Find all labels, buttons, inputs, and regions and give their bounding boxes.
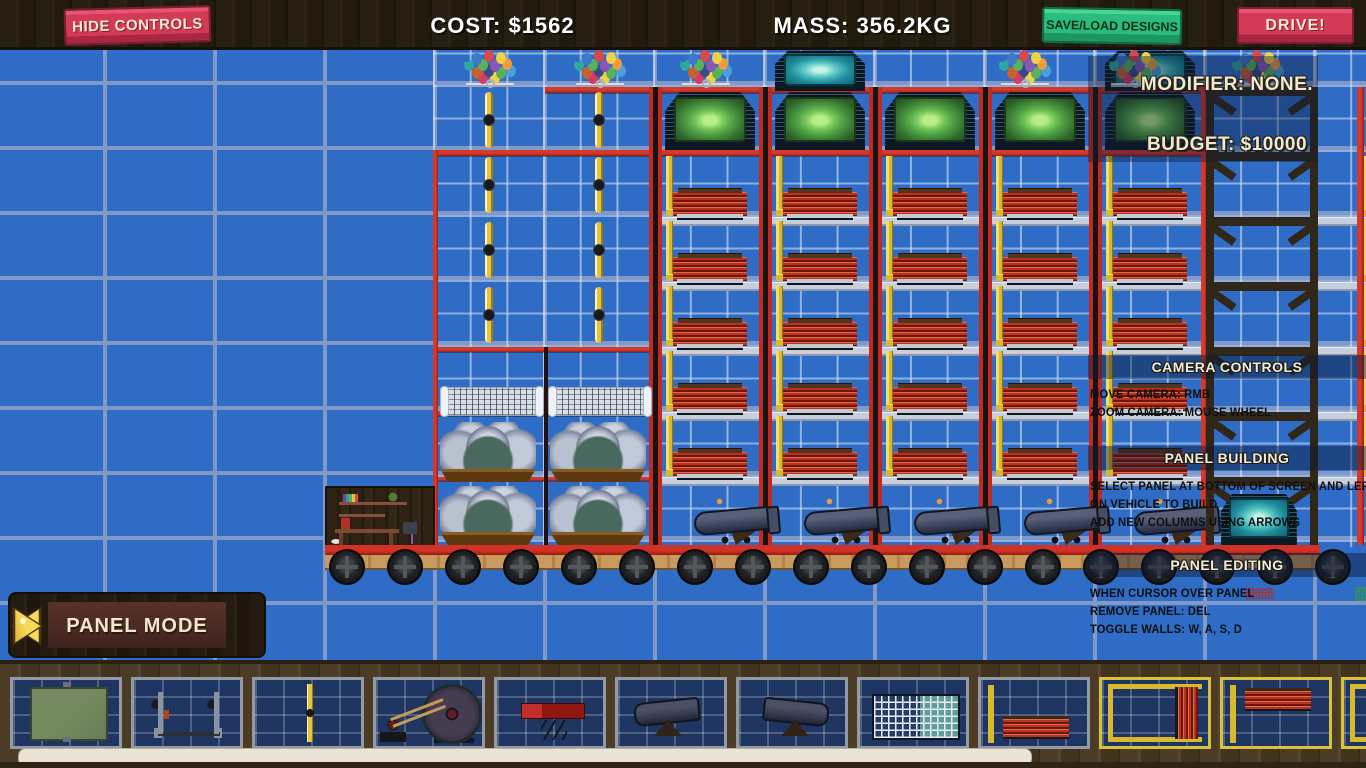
wheel-sprite <box>735 549 771 585</box>
ywall-sprite <box>1106 221 1113 279</box>
ywall-sprite <box>886 221 893 279</box>
radiator-sprite[interactable] <box>1003 387 1077 411</box>
build-area[interactable]: MODIFIER: NONE. BUDGET: $10000 CAMERA CO… <box>0 0 1366 660</box>
cannon-sprite[interactable] <box>690 497 782 546</box>
wheel-sprite <box>851 549 887 585</box>
ywall-sprite <box>666 156 673 214</box>
tscreen-sprite[interactable] <box>1217 493 1301 545</box>
room-sprite <box>325 486 435 547</box>
palette-slot-cannon-right[interactable] <box>615 677 727 749</box>
palette-slot-spring-platform[interactable] <box>494 677 606 749</box>
prop-sprite[interactable] <box>485 222 493 278</box>
radiator-sprite[interactable] <box>1113 387 1187 411</box>
cannon-sprite[interactable] <box>1020 497 1112 546</box>
ywall-sprite <box>776 416 783 474</box>
radiator-wall-partial-icon <box>1344 680 1366 746</box>
wheel-sprite <box>677 549 713 585</box>
palette-slot-propeller[interactable] <box>252 677 364 749</box>
boulders-sprite[interactable] <box>436 486 540 545</box>
wheel-sprite <box>1141 549 1177 585</box>
ywall-sprite <box>886 286 893 344</box>
ywall-sprite <box>1106 351 1113 409</box>
prop-sprite[interactable] <box>485 157 493 213</box>
wheel-sprite <box>1025 549 1061 585</box>
palette-slot-grid-panel[interactable] <box>857 677 969 749</box>
balloons-sprite[interactable] <box>572 50 628 86</box>
wheel-sprite <box>967 549 1003 585</box>
motor-flywheel-icon <box>376 680 482 746</box>
save-load-designs-button[interactable]: SAVE/LOAD DESIGNS <box>1042 7 1183 45</box>
woodcell-sprite[interactable] <box>1206 282 1318 347</box>
game-root: { "top_bar": { "hide_controls_label": "H… <box>0 0 1366 768</box>
gscreen-sprite[interactable] <box>659 91 761 150</box>
radiator-sprite[interactable] <box>783 452 857 476</box>
vline-sprite <box>1357 87 1364 545</box>
balloons-sprite[interactable] <box>462 50 518 86</box>
cannon-sprite[interactable] <box>910 497 1002 546</box>
wheel-sprite <box>329 549 365 585</box>
cost-label: COST: $1562 <box>400 13 605 39</box>
palette-slot-motor-flywheel[interactable] <box>373 677 485 749</box>
ywall-sprite <box>1106 286 1113 344</box>
prop-sprite[interactable] <box>485 92 493 148</box>
top-bar: HIDE CONTROLS COST: $1562 MASS: 356.2KG … <box>0 0 1366 50</box>
panel-palette-bar <box>0 660 1366 768</box>
ywall-sprite <box>886 416 893 474</box>
woodcell-sprite[interactable] <box>1206 347 1318 412</box>
wheel-sprite <box>1257 549 1293 585</box>
ywall-sprite <box>996 416 1003 474</box>
radiator-sprite[interactable] <box>893 452 967 476</box>
prop-sprite[interactable] <box>595 92 603 148</box>
prop-sprite[interactable] <box>595 222 603 278</box>
radiator-sprite[interactable] <box>1003 192 1077 216</box>
wheel-sprite <box>1083 549 1119 585</box>
ywall-sprite <box>1106 156 1113 214</box>
mode-next-button[interactable] <box>10 605 44 647</box>
ywall-sprite <box>666 416 673 474</box>
ywall-sprite <box>996 286 1003 344</box>
ywall-sprite <box>1106 416 1113 474</box>
mode-label: PANEL MODE <box>48 602 226 648</box>
radiator-sprite[interactable] <box>1113 257 1187 281</box>
radiator-ceiling-icon <box>1223 680 1329 746</box>
rpost-sprite <box>979 87 992 547</box>
radiator-sprite[interactable] <box>1113 452 1187 476</box>
tscreen-sprite[interactable] <box>770 50 870 91</box>
woodcell-sprite[interactable] <box>1206 217 1318 282</box>
grid-panel-icon <box>860 680 966 746</box>
ywall-sprite <box>776 221 783 279</box>
prop-sprite[interactable] <box>485 287 493 343</box>
palette-slot-radiator-ceiling[interactable] <box>1220 677 1332 749</box>
radiator-sprite[interactable] <box>783 387 857 411</box>
cannon-right-icon <box>618 680 724 746</box>
radiator-sprite[interactable] <box>893 192 967 216</box>
wheel-sprite <box>387 549 423 585</box>
wheel-sprite <box>561 549 597 585</box>
wheel-sprite <box>445 549 481 585</box>
spring-platform-icon <box>497 680 603 746</box>
boulders-sprite[interactable] <box>436 422 540 482</box>
cannon-sprite[interactable] <box>800 497 892 546</box>
net-sprite[interactable] <box>549 387 651 416</box>
gscreen-sprite[interactable] <box>879 91 981 150</box>
gscreen-sprite[interactable] <box>769 91 871 150</box>
wheel-sprite <box>1199 549 1235 585</box>
dotsgreen-sprite <box>1355 587 1366 601</box>
palette-scrollbar[interactable] <box>18 748 1032 767</box>
palette-slot-cannon-left[interactable] <box>736 677 848 749</box>
balloons-sprite[interactable] <box>678 50 734 86</box>
palette-slot-tow-hitch[interactable] <box>131 677 243 749</box>
radiator-sprite[interactable] <box>673 257 747 281</box>
radiator-sprite[interactable] <box>1113 322 1187 346</box>
radiator-sprite[interactable] <box>1003 452 1077 476</box>
rpost-sprite <box>869 87 882 547</box>
mode-selector: PANEL MODE <box>8 592 266 658</box>
mass-label: MASS: 356.2KG <box>760 13 965 39</box>
drive-button[interactable]: DRIVE! <box>1237 7 1354 44</box>
radiator-right-wall-icon <box>1102 680 1208 746</box>
ywall-sprite <box>996 156 1003 214</box>
radiator-sprite[interactable] <box>783 257 857 281</box>
radiator-sprite[interactable] <box>1113 192 1187 216</box>
cannon-left-icon <box>739 680 845 746</box>
radiator-floor-icon <box>981 680 1087 746</box>
radiator-sprite[interactable] <box>1003 257 1077 281</box>
radiator-sprite[interactable] <box>1003 322 1077 346</box>
palette-slot-radiator-right-wall[interactable] <box>1099 677 1211 749</box>
ywall-sprite <box>666 351 673 409</box>
palette-slot-radiator-floor[interactable] <box>978 677 1090 749</box>
wheel-sprite <box>793 549 829 585</box>
radiator-sprite[interactable] <box>673 387 747 411</box>
hide-controls-button[interactable]: HIDE CONTROLS <box>64 5 212 46</box>
wheel-sprite <box>619 549 655 585</box>
mode-plank: PANEL MODE <box>48 602 226 648</box>
wheel-sprite <box>909 549 945 585</box>
panel-editing-line: WHEN CURSOR OVER PANEL <box>1090 584 1366 602</box>
palette-slot-green-screen-panel[interactable] <box>10 677 122 749</box>
ywall-sprite <box>666 286 673 344</box>
tow-hitch-icon <box>134 680 240 746</box>
prop-sprite[interactable] <box>595 287 603 343</box>
ywall-sprite <box>996 221 1003 279</box>
wheel-sprite <box>503 549 539 585</box>
radiator-sprite[interactable] <box>673 322 747 346</box>
dotsred-sprite <box>1246 588 1274 599</box>
radiator-sprite[interactable] <box>893 257 967 281</box>
balloons-sprite[interactable] <box>997 50 1053 86</box>
ywall-sprite <box>776 351 783 409</box>
palette-slot-radiator-wall-partial[interactable] <box>1341 677 1366 749</box>
radiator-sprite[interactable] <box>893 322 967 346</box>
rpost-sprite <box>759 87 772 547</box>
radiator-sprite[interactable] <box>893 387 967 411</box>
radiator-sprite[interactable] <box>673 452 747 476</box>
panel-editing-line: TOGGLE WALLS: W, A, S, D <box>1090 620 1366 638</box>
radiator-sprite[interactable] <box>783 192 857 216</box>
ywall-sprite <box>996 351 1003 409</box>
rpost-sprite <box>649 87 662 547</box>
ywall-sprite <box>776 286 783 344</box>
radiator-sprite[interactable] <box>783 322 857 346</box>
ywall-sprite <box>886 156 893 214</box>
radiator-sprite[interactable] <box>673 192 747 216</box>
propeller-icon <box>255 680 361 746</box>
gscreen-sprite[interactable] <box>989 91 1091 150</box>
prop-sprite[interactable] <box>595 157 603 213</box>
woodcell-sprite[interactable] <box>1206 412 1318 477</box>
boulders-sprite[interactable] <box>546 486 650 545</box>
ywall-sprite <box>886 351 893 409</box>
net-sprite[interactable] <box>441 387 543 416</box>
green-screen-panel-icon <box>13 680 119 746</box>
shade-sprite <box>1088 56 1318 162</box>
panel-editing-line: REMOVE PANEL: DEL <box>1090 602 1366 620</box>
wheel-sprite <box>1315 549 1351 585</box>
boulders-sprite[interactable] <box>546 422 650 482</box>
ywall-sprite <box>666 221 673 279</box>
ywall-sprite <box>776 156 783 214</box>
